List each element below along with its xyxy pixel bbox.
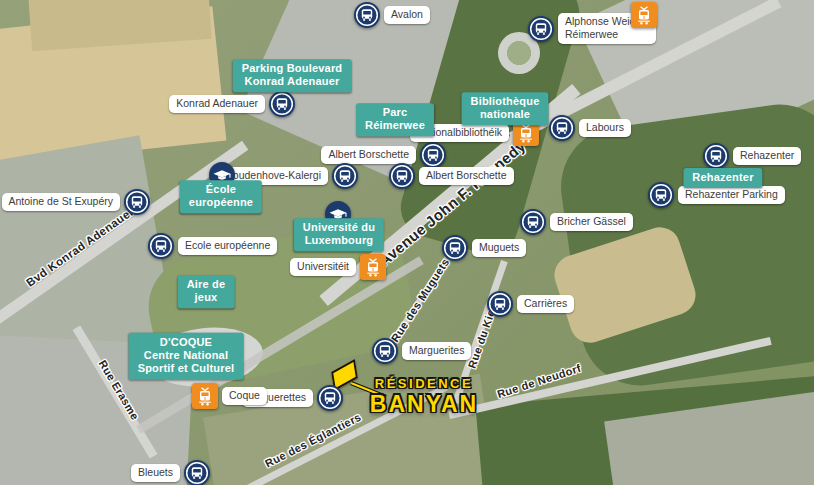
terrain-forest-right xyxy=(553,97,814,393)
residence-banyan-label: RÉSIDENCE BANYAN xyxy=(370,377,478,418)
bus-stop-muguets[interactable]: Muguets xyxy=(442,235,526,261)
bus-stop-label: Konrad Adenauer xyxy=(169,95,265,113)
place-label-parc-reimerwee: ParcRéimerwee xyxy=(356,103,434,136)
bus-icon xyxy=(148,233,174,259)
tram-stop-kirchberg-tram[interactable] xyxy=(631,2,657,28)
bus-icon xyxy=(487,291,513,317)
bus-icon xyxy=(269,91,295,117)
bus-stop-ecole-europeenne[interactable]: Ecole européenne xyxy=(148,233,277,259)
bus-icon xyxy=(703,143,729,169)
bus-stop-label: Muguets xyxy=(472,239,526,257)
bus-icon xyxy=(549,115,575,141)
bus-icon xyxy=(372,338,398,364)
bus-icon xyxy=(528,16,554,42)
bus-icon xyxy=(389,163,415,189)
place-label-ecole-europeenne: Écoleeuropéenne xyxy=(180,180,262,213)
bus-stop-label: Bleuets xyxy=(131,464,180,482)
place-label-universite-du-luxembourg: Université duLuxembourg xyxy=(294,218,384,251)
bus-stop-albert-borschette-2[interactable]: Albert Borschette xyxy=(389,163,514,189)
bus-stop-label: Bricher Gässel xyxy=(550,213,633,231)
bus-icon xyxy=(648,182,674,208)
bus-stop-avalon[interactable]: Avalon xyxy=(354,2,430,28)
bus-stop-label: Avalon xyxy=(384,6,430,24)
residence-name: BANYAN xyxy=(370,392,478,417)
place-label-aire-de-jeux: Aire dejeux xyxy=(178,275,235,308)
place-label-rehazenter: Rehazenter xyxy=(683,168,762,188)
bus-stop-bricher-gassel[interactable]: Bricher Gässel xyxy=(520,209,633,235)
bus-stop-labours[interactable]: Labours xyxy=(549,115,631,141)
tram-icon xyxy=(192,383,218,409)
bus-icon xyxy=(442,235,468,261)
map: RÉSIDENCE BANYAN AvalonAlphonse WeickerR… xyxy=(0,0,814,485)
place-label-parking-boulevard-konrad-adenauer: Parking BoulevardKonrad Adenauer xyxy=(233,59,352,92)
tram-icon xyxy=(631,2,657,28)
bus-stop-label: Carrières xyxy=(517,295,574,313)
bus-stop-antoine-de-st-exupery[interactable]: Antoine de St Exupéry xyxy=(2,189,150,215)
bus-icon xyxy=(520,209,546,235)
bus-icon xyxy=(124,189,150,215)
bus-icon xyxy=(184,460,210,485)
bus-stop-label: Rehazenter xyxy=(733,147,801,165)
bus-stop-marguerites[interactable]: Marguerites xyxy=(372,338,471,364)
bus-stop-label: Antoine de St Exupéry xyxy=(2,193,120,211)
bus-stop-label: Ecole européenne xyxy=(178,237,277,255)
bus-stop-label: Rehazenter Parking xyxy=(678,186,785,204)
bus-icon xyxy=(332,163,358,189)
tram-stop-coque[interactable]: Coque xyxy=(192,383,267,409)
bus-stop-label: Labours xyxy=(579,119,631,137)
tram-icon xyxy=(360,254,386,280)
bus-stop-rehazenter[interactable]: Rehazenter xyxy=(703,143,801,169)
place-label-bibliotheque-nationale: Bibliothèquenationale xyxy=(461,92,548,125)
bus-stop-label: Albert Borschette xyxy=(419,167,514,185)
bus-icon xyxy=(354,2,380,28)
tram-stop-label: Universitéit xyxy=(290,258,356,276)
bus-stop-bleuets[interactable]: Bleuets xyxy=(131,460,210,485)
residence-name-prefix: RÉSIDENCE xyxy=(370,377,478,391)
bus-stop-label: Albert Borschette xyxy=(321,146,416,164)
bus-icon xyxy=(317,385,343,411)
tram-stop-label: Coque xyxy=(222,387,267,405)
bus-stop-label: Marguerites xyxy=(402,342,471,360)
tram-stop-universiteit[interactable]: Universitéit xyxy=(290,254,386,280)
bus-stop-konrad-adenauer[interactable]: Konrad Adenauer xyxy=(169,91,295,117)
bus-stop-carrieres[interactable]: Carrières xyxy=(487,291,574,317)
place-label-dcoque: D'COQUECentre NationalSportif et Culture… xyxy=(129,333,244,380)
